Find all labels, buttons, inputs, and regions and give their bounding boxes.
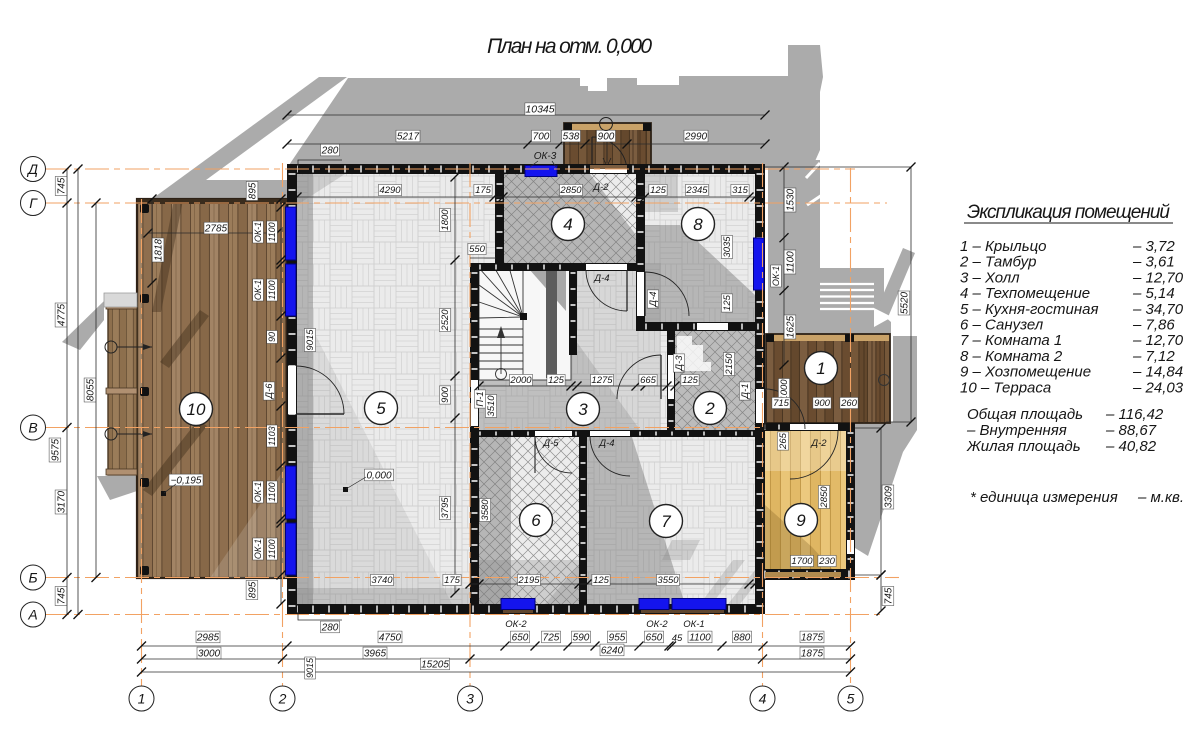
- svg-text:1: 1: [138, 691, 146, 707]
- svg-text:1100: 1100: [785, 251, 796, 273]
- svg-text:2520: 2520: [440, 309, 451, 332]
- svg-text:ОК-1: ОК-1: [253, 280, 263, 300]
- svg-text:В: В: [28, 420, 37, 436]
- svg-text:1100: 1100: [267, 222, 277, 241]
- svg-text:895: 895: [247, 581, 258, 598]
- svg-text:315: 315: [732, 185, 749, 196]
- svg-text:125: 125: [548, 375, 565, 386]
- svg-text:3035: 3035: [722, 236, 733, 258]
- svg-text:– 7,86: – 7,86: [1132, 317, 1175, 334]
- svg-text:– 5,14: – 5,14: [1132, 285, 1175, 302]
- svg-text:3170: 3170: [56, 490, 67, 513]
- svg-text:90: 90: [267, 332, 277, 342]
- svg-text:ОК-1: ОК-1: [253, 222, 263, 242]
- svg-text:1800: 1800: [440, 209, 451, 231]
- svg-text:8055: 8055: [85, 378, 96, 401]
- svg-text:4: 4: [759, 691, 767, 707]
- svg-text:1 – Крыльцо: 1 – Крыльцо: [960, 238, 1047, 255]
- svg-text:7: 7: [661, 512, 671, 531]
- svg-text:1700: 1700: [791, 556, 813, 567]
- svg-text:650: 650: [646, 632, 663, 643]
- svg-text:0,000: 0,000: [366, 470, 391, 481]
- svg-text:9: 9: [796, 511, 806, 530]
- svg-text:Б: Б: [28, 570, 37, 586]
- svg-text:– м.кв.: – м.кв.: [1137, 489, 1184, 506]
- svg-text:3510: 3510: [486, 395, 497, 417]
- svg-text:2: 2: [278, 691, 287, 707]
- svg-text:280: 280: [321, 622, 339, 633]
- svg-text:– 14,84: – 14,84: [1132, 364, 1183, 381]
- svg-text:3550: 3550: [657, 575, 679, 586]
- svg-text:880: 880: [734, 632, 751, 643]
- svg-text:1875: 1875: [801, 632, 824, 643]
- svg-text:715: 715: [773, 398, 790, 409]
- svg-text:9015: 9015: [305, 657, 315, 678]
- svg-text:2345: 2345: [685, 185, 708, 196]
- svg-text:– 40,82: – 40,82: [1105, 438, 1157, 455]
- svg-text:265: 265: [778, 432, 789, 450]
- svg-text:665: 665: [640, 375, 657, 386]
- svg-text:– 3,61: – 3,61: [1132, 254, 1175, 271]
- svg-text:260: 260: [840, 398, 858, 409]
- svg-text:А: А: [27, 607, 37, 623]
- svg-text:45: 45: [672, 633, 683, 644]
- svg-text:230: 230: [818, 556, 836, 567]
- svg-text:900: 900: [814, 398, 831, 409]
- svg-text:3 – Холл: 3 – Холл: [960, 269, 1020, 286]
- svg-text:650: 650: [512, 632, 529, 643]
- svg-text:2785: 2785: [204, 223, 228, 234]
- svg-text:– Внутренняя: – Внутренняя: [966, 422, 1067, 439]
- svg-text:ОК-2: ОК-2: [505, 619, 527, 630]
- svg-text:725: 725: [543, 632, 560, 643]
- svg-text:4 – Техпомещение: 4 – Техпомещение: [960, 285, 1090, 302]
- svg-text:6 – Санузел: 6 – Санузел: [960, 317, 1044, 334]
- svg-text:2850: 2850: [559, 185, 582, 196]
- svg-text:1103: 1103: [267, 426, 277, 445]
- svg-text:8: 8: [693, 215, 703, 234]
- svg-text:538: 538: [563, 131, 580, 142]
- svg-text:900: 900: [440, 386, 451, 403]
- svg-text:175: 175: [475, 185, 492, 196]
- svg-text:9 – Хозпомещение: 9 – Хозпомещение: [960, 364, 1091, 381]
- svg-text:3795: 3795: [440, 497, 451, 519]
- svg-text:Д-4: Д-4: [648, 291, 659, 307]
- svg-text:Жилая площадь: Жилая площадь: [966, 438, 1081, 455]
- svg-text:9575: 9575: [50, 438, 61, 461]
- svg-text:1100: 1100: [689, 632, 711, 643]
- svg-text:550: 550: [469, 244, 486, 255]
- svg-text:7 – Комната 1: 7 – Комната 1: [960, 332, 1062, 349]
- svg-text:2195: 2195: [517, 575, 540, 586]
- svg-text:125: 125: [722, 294, 733, 311]
- svg-text:– 24,03: – 24,03: [1132, 379, 1184, 396]
- svg-text:175: 175: [444, 575, 461, 586]
- svg-text:1530: 1530: [785, 188, 796, 211]
- svg-text:6: 6: [531, 511, 541, 530]
- svg-text:ОК-1: ОК-1: [771, 266, 781, 286]
- svg-text:5217: 5217: [397, 131, 420, 142]
- svg-text:Экспликация помещений: Экспликация помещений: [967, 202, 1170, 223]
- svg-text:125: 125: [682, 375, 699, 386]
- svg-text:1818: 1818: [153, 238, 164, 261]
- svg-text:Д-2: Д-2: [810, 438, 827, 449]
- svg-text:1875: 1875: [801, 648, 824, 659]
- svg-text:895: 895: [247, 182, 258, 199]
- svg-text:4290: 4290: [379, 185, 401, 196]
- svg-text:ОК-3: ОК-3: [534, 151, 557, 162]
- svg-text:ОК-1: ОК-1: [253, 539, 263, 559]
- svg-text:1100: 1100: [267, 539, 277, 558]
- svg-text:– 12,70: – 12,70: [1132, 269, 1184, 286]
- svg-text:– 3,72: – 3,72: [1132, 238, 1175, 255]
- svg-text:900: 900: [598, 131, 615, 142]
- svg-text:* единица измерения: * единица измерения: [970, 489, 1118, 506]
- svg-text:6240: 6240: [601, 645, 624, 656]
- svg-text:Д-6: Д-6: [264, 383, 275, 400]
- svg-text:П-1: П-1: [475, 391, 486, 406]
- svg-text:2150: 2150: [724, 353, 735, 376]
- svg-text:1100: 1100: [267, 482, 277, 501]
- svg-text:3740: 3740: [371, 575, 393, 586]
- svg-text:745: 745: [56, 177, 67, 194]
- svg-text:3580: 3580: [480, 499, 491, 521]
- svg-text:590: 590: [573, 632, 590, 643]
- svg-text:2: 2: [704, 399, 715, 418]
- svg-text:Д-4: Д-4: [598, 438, 614, 449]
- svg-text:125: 125: [650, 185, 667, 196]
- svg-text:2985: 2985: [196, 632, 220, 643]
- svg-text:3000: 3000: [198, 648, 221, 659]
- svg-text:3965: 3965: [364, 648, 387, 659]
- svg-text:ОК-1: ОК-1: [253, 482, 263, 502]
- svg-text:Д-1: Д-1: [740, 383, 751, 399]
- svg-text:Общая площадь: Общая площадь: [967, 406, 1083, 423]
- svg-text:2850: 2850: [819, 486, 830, 509]
- svg-text:Д-3: Д-3: [674, 355, 685, 372]
- svg-text:10345: 10345: [525, 104, 554, 116]
- svg-text:5520: 5520: [899, 291, 910, 314]
- svg-text:Д-4: Д-4: [593, 273, 609, 284]
- svg-text:3: 3: [578, 400, 588, 419]
- svg-text:15205: 15205: [421, 659, 449, 670]
- svg-text:3309: 3309: [883, 485, 894, 508]
- svg-text:745: 745: [56, 587, 67, 604]
- svg-text:1275: 1275: [591, 375, 613, 386]
- svg-text:Д-2: Д-2: [592, 182, 609, 193]
- svg-text:Д: Д: [26, 161, 38, 177]
- svg-text:280: 280: [321, 145, 339, 156]
- svg-text:10 – Терраса: 10 – Терраса: [960, 379, 1051, 396]
- svg-text:4750: 4750: [379, 632, 402, 643]
- svg-text:10: 10: [187, 400, 206, 419]
- svg-text:9015: 9015: [305, 329, 316, 351]
- svg-text:700: 700: [533, 131, 550, 142]
- svg-text:5: 5: [376, 399, 386, 418]
- svg-text:2000: 2000: [509, 375, 532, 386]
- svg-text:2990: 2990: [684, 131, 708, 142]
- svg-text:План на отм. 0,000: План на отм. 0,000: [487, 35, 652, 58]
- svg-text:1100: 1100: [267, 280, 277, 299]
- svg-text:Д-5: Д-5: [542, 438, 559, 449]
- svg-text:1: 1: [816, 359, 825, 378]
- svg-text:– 12,70: – 12,70: [1132, 332, 1184, 349]
- svg-text:– 116,42: – 116,42: [1105, 406, 1164, 423]
- svg-text:5: 5: [847, 691, 855, 707]
- svg-text:– 88,67: – 88,67: [1105, 422, 1157, 439]
- svg-text:1625: 1625: [785, 315, 796, 338]
- svg-text:955: 955: [609, 632, 626, 643]
- svg-text:125: 125: [593, 575, 610, 586]
- svg-text:4775: 4775: [56, 303, 67, 326]
- svg-text:3: 3: [466, 691, 474, 707]
- svg-text:– 34,70: – 34,70: [1132, 301, 1184, 318]
- svg-text:5 – Кухня-гостиная: 5 – Кухня-гостиная: [960, 301, 1098, 318]
- svg-text:4: 4: [563, 215, 572, 234]
- svg-text:8 – Комната 2: 8 – Комната 2: [960, 348, 1063, 365]
- svg-text:745: 745: [883, 587, 894, 604]
- svg-text:– 7,12: – 7,12: [1132, 348, 1175, 365]
- svg-text:ОК-1: ОК-1: [683, 619, 704, 630]
- svg-text:ОК-2: ОК-2: [646, 619, 668, 630]
- svg-text:2 – Тамбур: 2 – Тамбур: [959, 254, 1036, 271]
